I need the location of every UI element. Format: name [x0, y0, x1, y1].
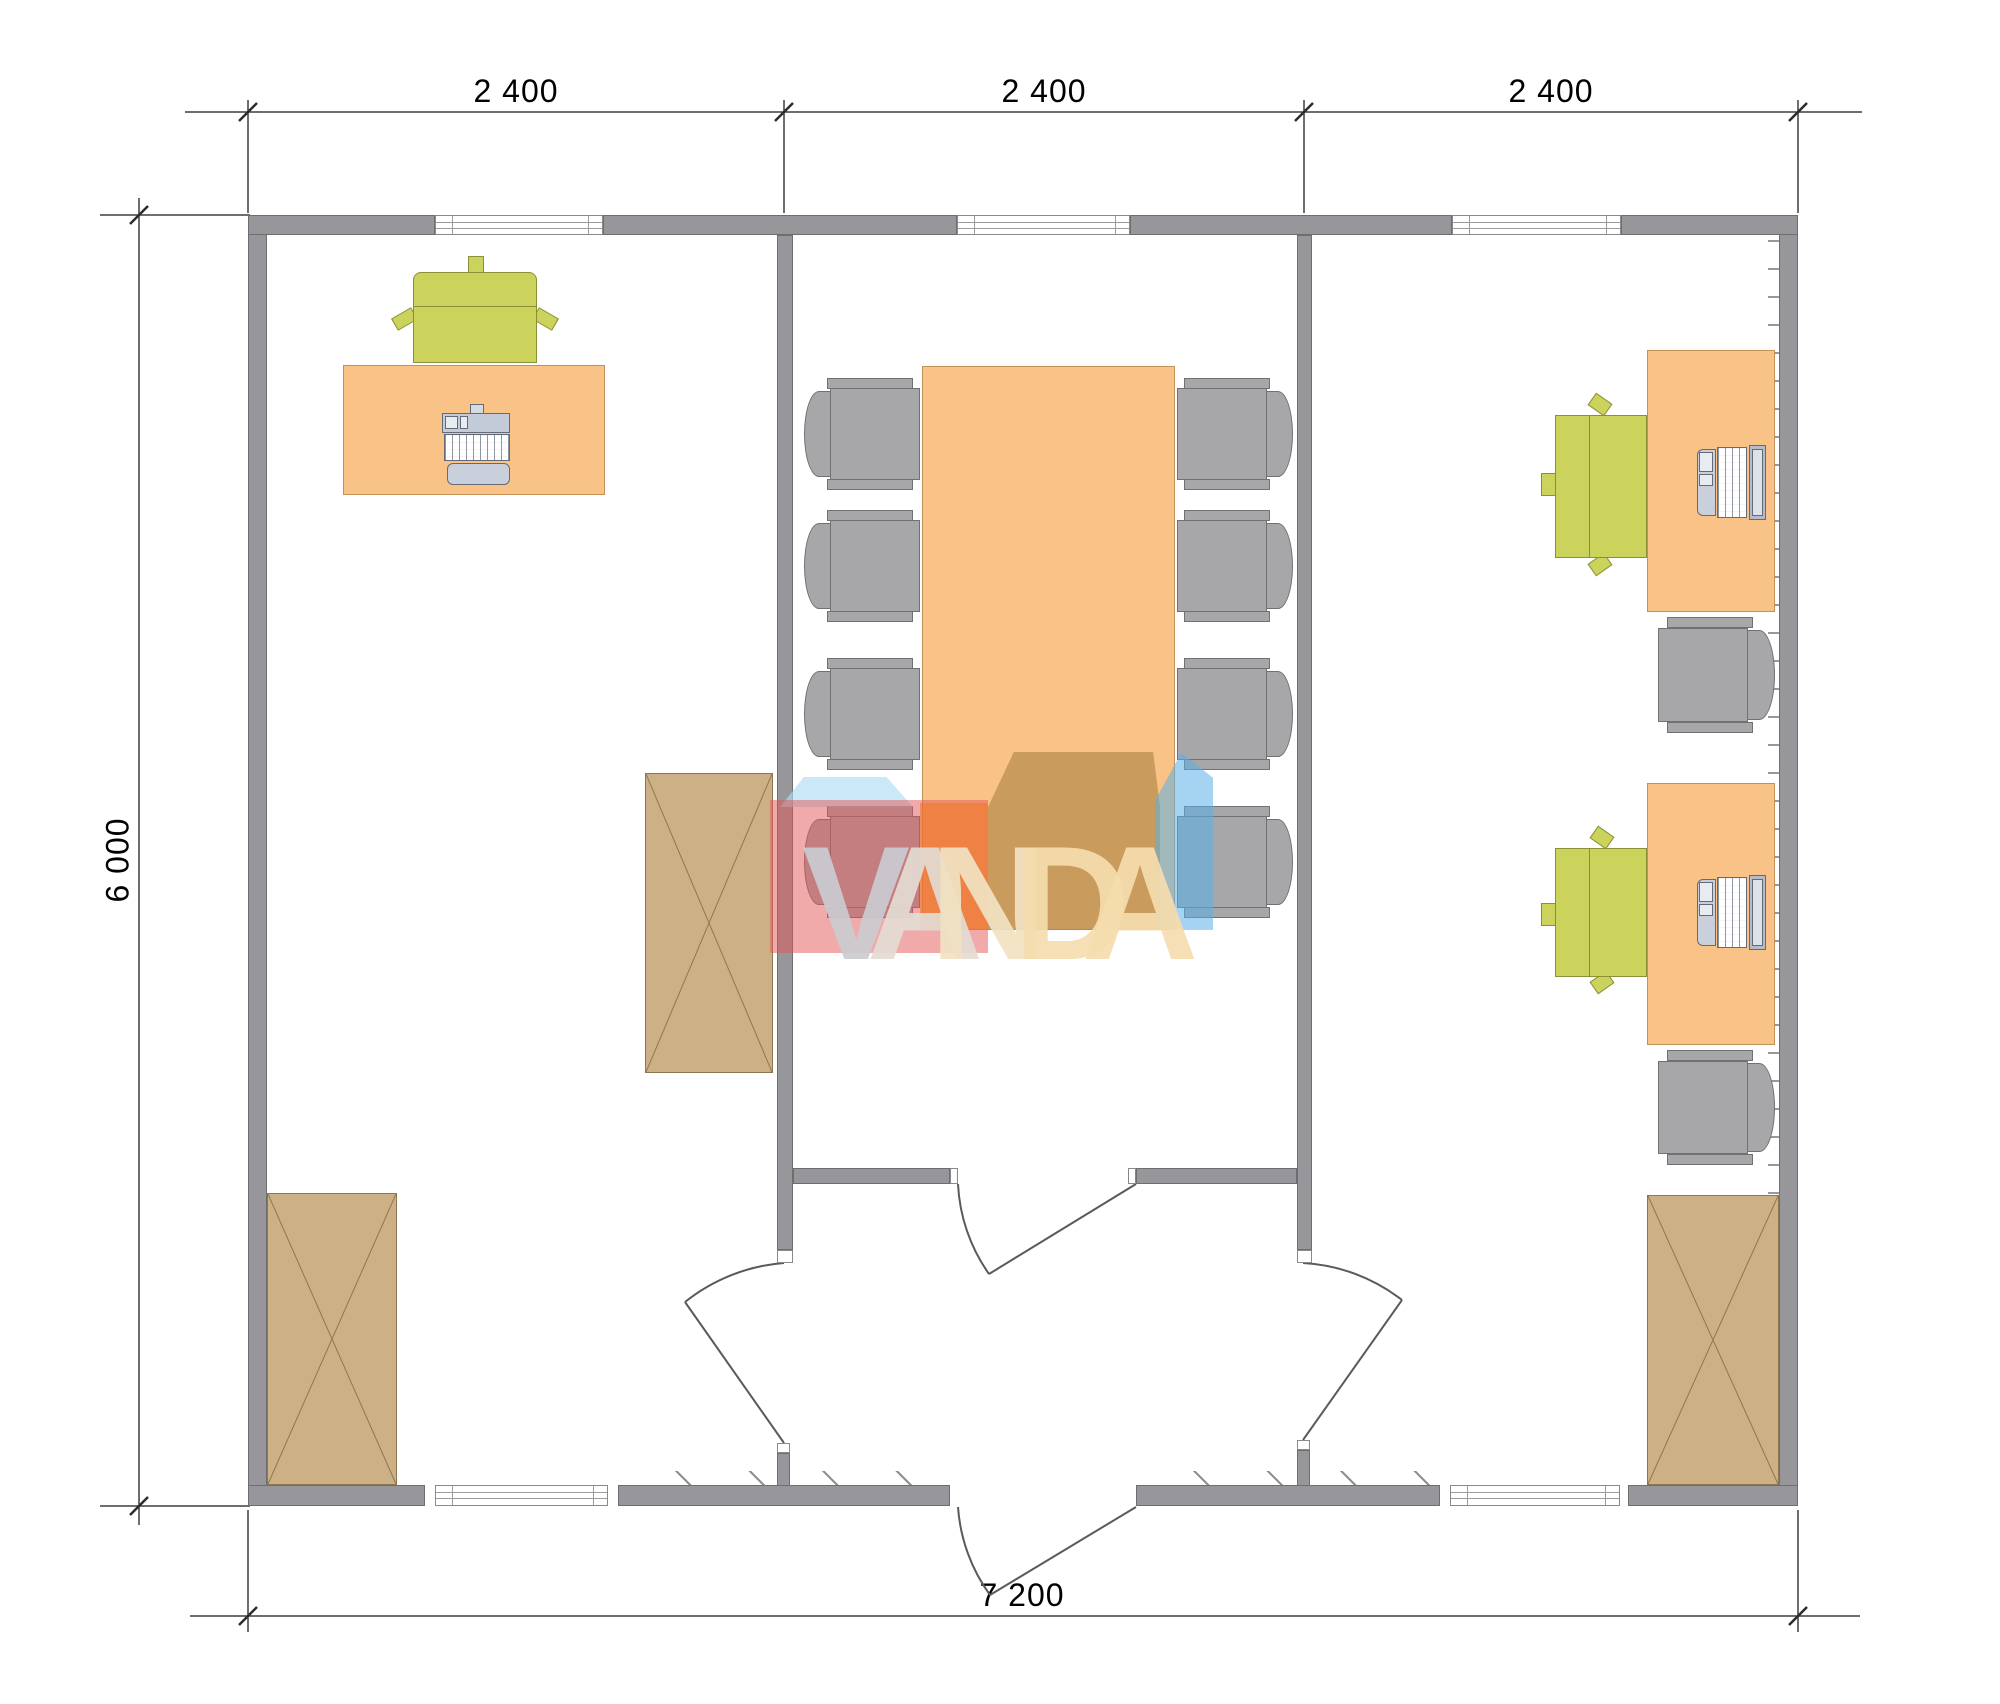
window-bottom-left	[435, 1485, 608, 1506]
computer-tab	[470, 404, 484, 414]
dimension-left: 6 000	[100, 817, 137, 902]
right-room-door-leaf	[1303, 1300, 1402, 1440]
exterior-wall-left	[248, 215, 267, 1506]
window-top-right	[1452, 215, 1621, 235]
top-dimension-line	[185, 100, 1862, 213]
hall-wall-right	[1136, 1168, 1297, 1184]
hall-door-leaf	[989, 1184, 1136, 1274]
left-office-cabinet-corner	[267, 1193, 397, 1485]
exterior-wall-top-segment-2	[603, 215, 957, 235]
partition-wall-left	[777, 235, 793, 1250]
left-room-door-leaf	[685, 1302, 784, 1443]
window-bottom-right	[1450, 1485, 1620, 1506]
exterior-wall-bottom-segment-1	[248, 1485, 425, 1506]
hall-door-jamb-left	[950, 1168, 958, 1184]
partition-wall-left-end-cap	[777, 1250, 793, 1263]
right-office-cabinet	[1647, 1195, 1779, 1485]
left-room-door-swing-arc	[685, 1263, 784, 1302]
left-office-cabinet-middle	[645, 773, 773, 1073]
left-office-chair-headrest	[468, 256, 484, 273]
vestibule-stub-cap-left	[777, 1443, 790, 1453]
window-top-left	[435, 215, 603, 235]
dimension-bottom: 7 200	[979, 1577, 1064, 1614]
computer-mouse-pad	[447, 463, 510, 485]
dimension-top-2: 2 400	[1001, 73, 1086, 110]
right-room-door-swing-arc	[1303, 1263, 1402, 1300]
vestibule-stub-cap-right	[1297, 1440, 1310, 1450]
exterior-wall-bottom-segment-3	[1136, 1485, 1440, 1506]
exterior-wall-bottom-segment-4	[1628, 1485, 1798, 1506]
watermark-letter-a2: A	[1082, 823, 1199, 985]
hall-door-swing-arc	[958, 1184, 989, 1274]
partition-wall-right-end-cap	[1297, 1250, 1312, 1263]
window-top-middle	[957, 215, 1130, 235]
exterior-wall-top-segment-3	[1130, 215, 1452, 235]
left-office-chair-backrest	[413, 272, 537, 307]
dimension-top-1: 2 400	[473, 73, 558, 110]
bottom-wall-hatch-3	[1136, 1471, 1440, 1485]
partition-wall-right	[1297, 235, 1312, 1250]
computer-screen-detail	[445, 416, 458, 429]
hall-wall-left	[793, 1168, 950, 1184]
dimension-top-3: 2 400	[1508, 73, 1593, 110]
left-office-chair-seat	[413, 306, 537, 363]
exterior-wall-top-segment-1	[248, 215, 435, 235]
vestibule-stub-wall-right	[1297, 1450, 1310, 1486]
computer-screen-detail-2	[460, 416, 468, 429]
computer-keyboard	[444, 434, 510, 461]
vestibule-stub-wall-left	[777, 1453, 790, 1486]
exterior-wall-right	[1779, 215, 1798, 1506]
floor-plan-canvas: 2 400 2 400 2 400 6 000 7 200	[0, 0, 2000, 1704]
exterior-wall-top-segment-4	[1621, 215, 1798, 235]
exterior-wall-bottom-segment-2	[618, 1485, 950, 1506]
hall-door-jamb-right	[1128, 1168, 1136, 1184]
